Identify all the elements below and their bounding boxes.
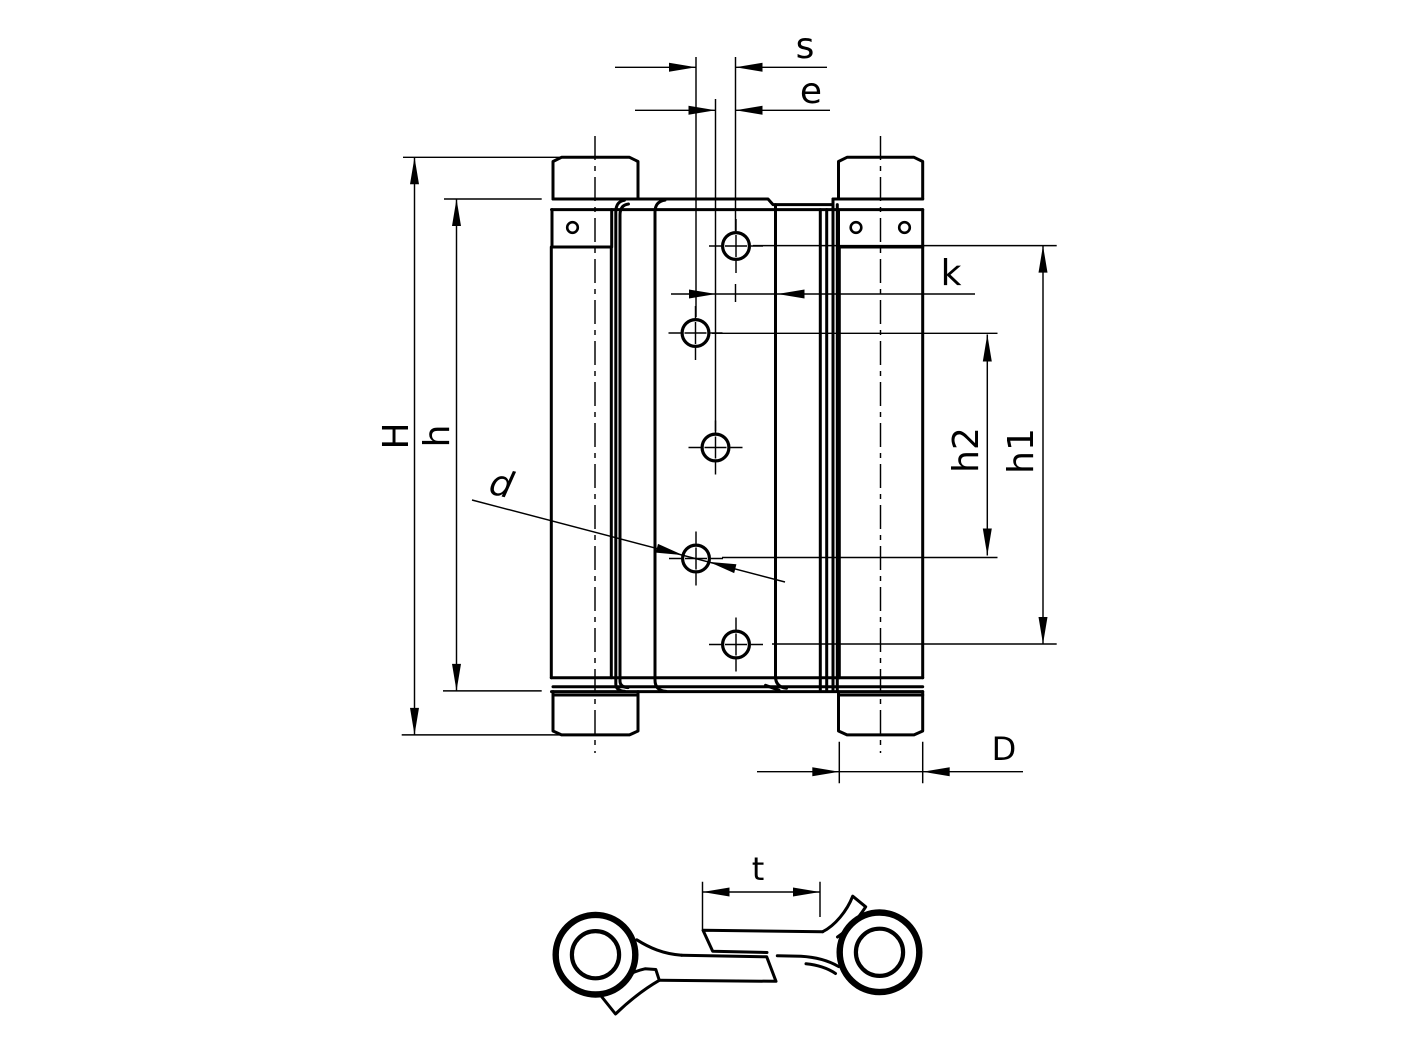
dim-label-D: D (992, 730, 1017, 768)
dim-label-k: k (941, 253, 962, 294)
dim-label-s: s (796, 26, 815, 67)
dim-label-h1: h1 (1001, 428, 1042, 474)
technical-drawing-canvas: s e k H h h2 h1 d D (0, 0, 1417, 1063)
dim-label-h2: h2 (946, 427, 987, 473)
dim-label-h: h (417, 425, 458, 448)
left-ring-inner (572, 931, 619, 978)
background (0, 0, 1417, 1063)
dim-label-e: e (800, 71, 822, 112)
drawing-page: s e k H h h2 h1 d D (0, 0, 1417, 1063)
dim-label-H: H (376, 422, 417, 449)
dim-label-t: t (752, 850, 765, 888)
right-ring-inner (856, 929, 903, 976)
